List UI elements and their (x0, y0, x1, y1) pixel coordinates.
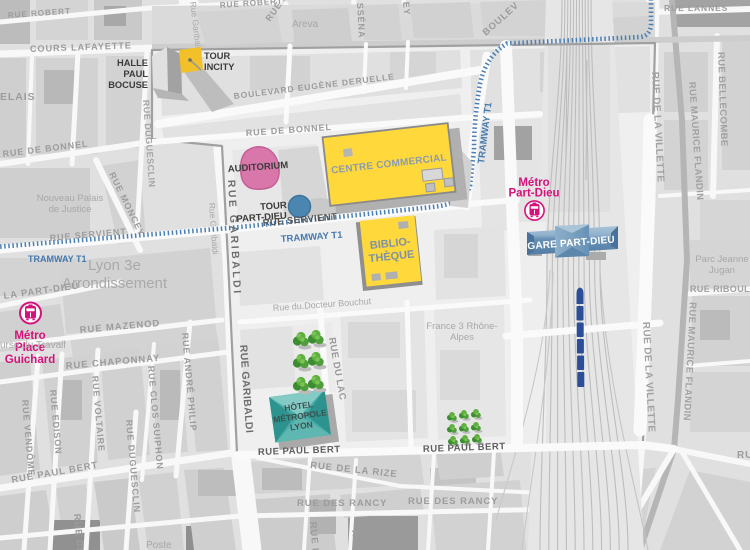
svg-text:EY: EY (401, 1, 412, 16)
svg-text:RU: RU (737, 450, 750, 461)
svg-text:Guichard: Guichard (5, 354, 55, 366)
svg-text:Parc Jeanne: Parc Jeanne (695, 254, 748, 265)
svg-text:Part-Dieu: Part-Dieu (508, 188, 559, 200)
svg-text:Areva: Areva (292, 19, 319, 30)
svg-text:ELAIS: ELAIS (0, 91, 35, 103)
svg-text:urse du Travail: urse du Travail (0, 340, 66, 351)
svg-text:BOCUSE: BOCUSE (108, 80, 148, 90)
svg-text:Lyon 3e: Lyon 3e (88, 257, 141, 274)
svg-text:RUE DES RANCY: RUE DES RANCY (408, 496, 498, 507)
svg-text:TOUR: TOUR (204, 51, 230, 61)
svg-text:HALLE: HALLE (117, 58, 148, 68)
svg-text:France 3 Rhône-: France 3 Rhône- (426, 321, 497, 332)
svg-text:Jugan: Jugan (709, 265, 735, 276)
svg-text:INCITY: INCITY (204, 62, 235, 72)
svg-text:de Justice: de Justice (49, 204, 92, 215)
svg-text:TRAMWAY T1: TRAMWAY T1 (28, 254, 87, 264)
svg-text:RUE LANNES: RUE LANNES (664, 3, 728, 13)
svg-text:RUE RIBOUL: RUE RIBOUL (690, 284, 750, 294)
svg-text:RUE DES RANCY: RUE DES RANCY (297, 498, 387, 509)
svg-text:RUE L: RUE L (307, 521, 321, 550)
svg-text:Nouveau Palais: Nouveau Palais (37, 193, 104, 204)
svg-text:SSÉNA: SSÉNA (355, 3, 367, 39)
svg-text:Alpes: Alpes (450, 332, 474, 343)
svg-text:Poste: Poste (146, 540, 172, 550)
svg-text:RU: RU (349, 529, 361, 545)
svg-text:PAUL: PAUL (123, 69, 148, 79)
